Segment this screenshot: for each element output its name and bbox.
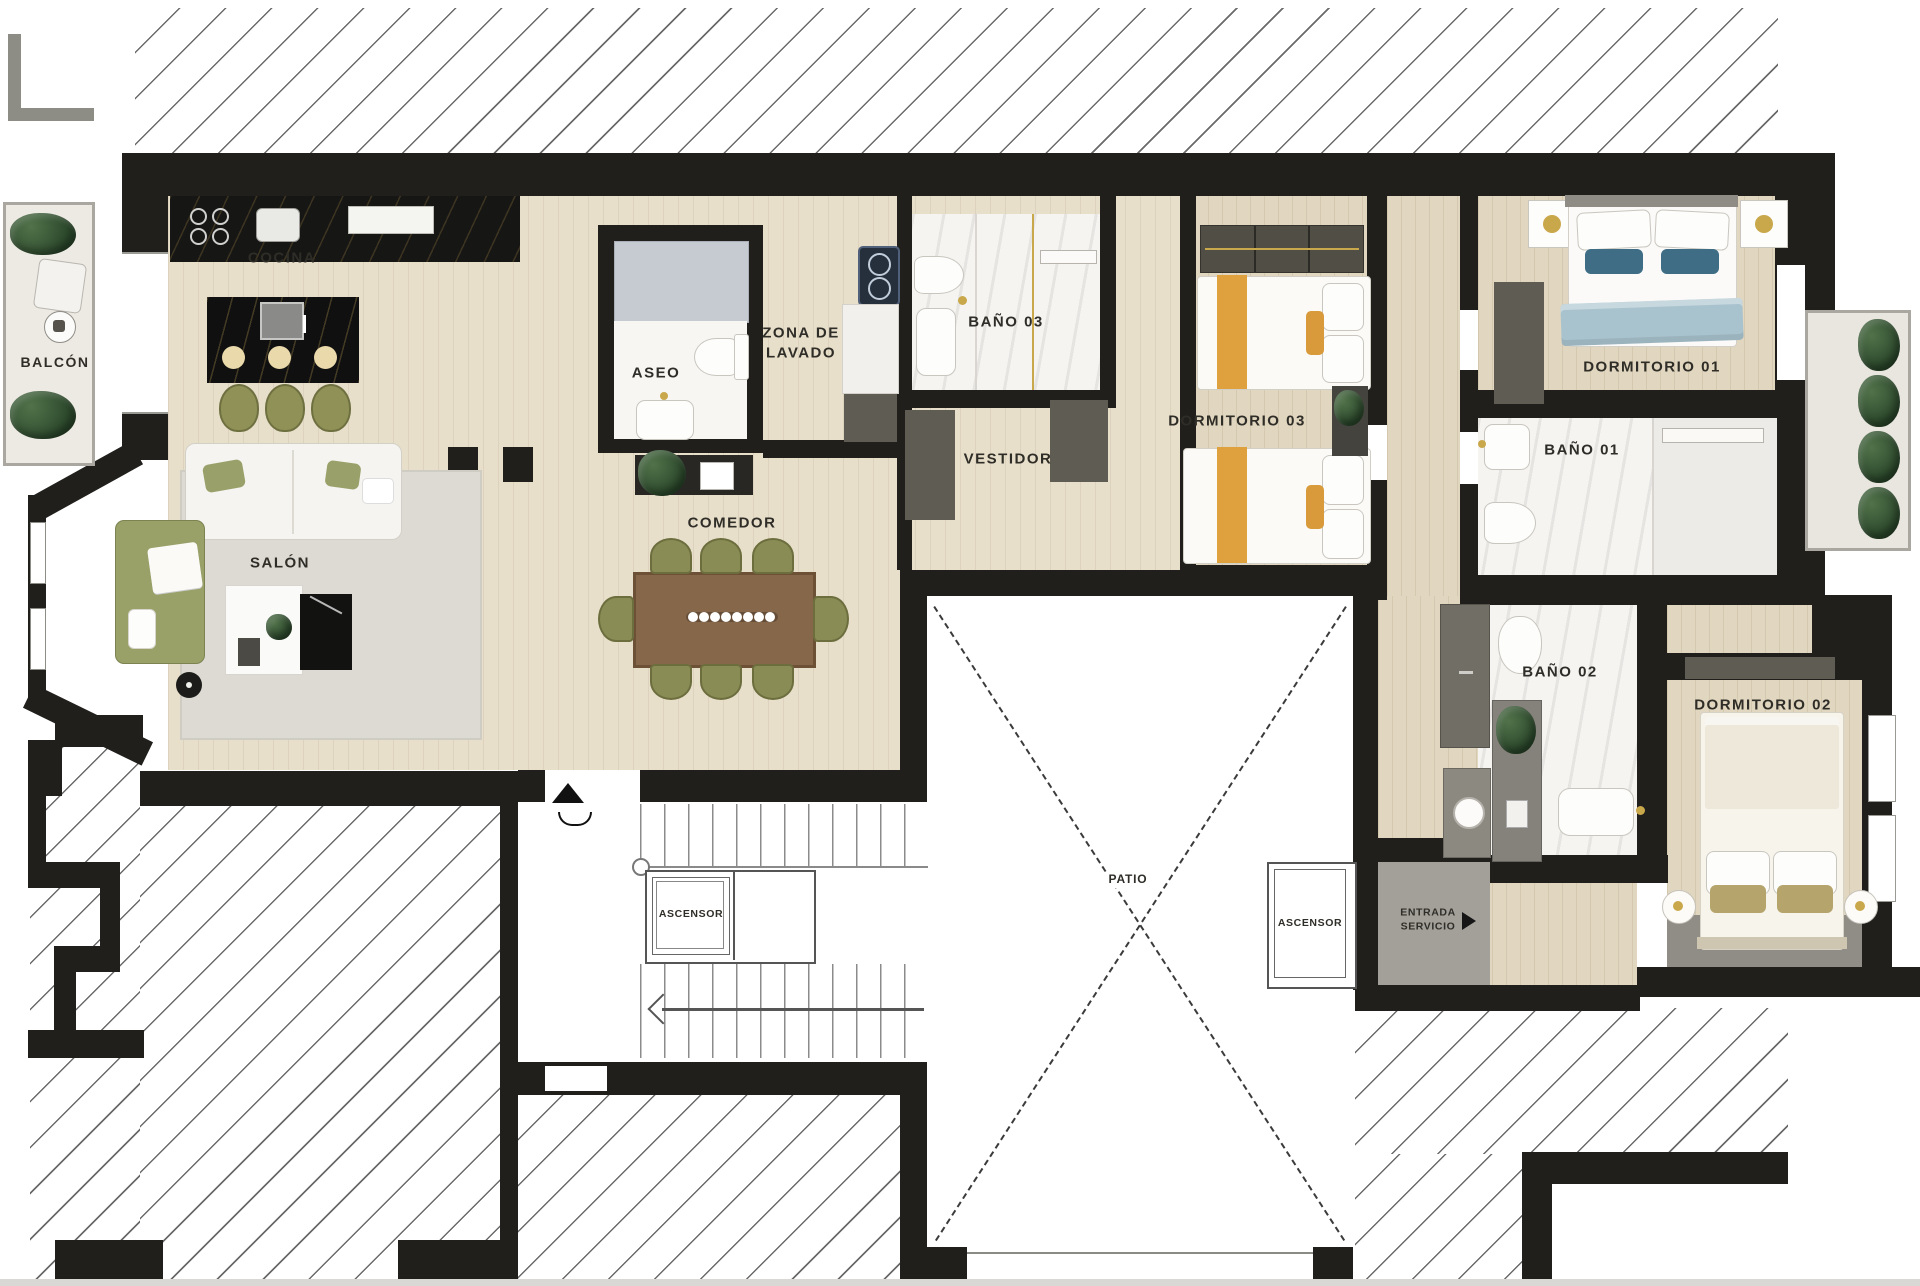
label-dormitorio03: DORMITORIO 03 <box>1168 411 1306 431</box>
hall-console-deco <box>1506 800 1528 828</box>
label-comedor: COMEDOR <box>688 513 777 533</box>
bano03-gold-seam <box>1032 214 1034 390</box>
wall-top <box>122 153 1781 196</box>
wall-dorm02-bottom <box>1637 967 1920 997</box>
island-sink <box>260 302 304 340</box>
bano02-shower-tall <box>1440 604 1490 748</box>
lamp <box>1673 901 1683 911</box>
chair <box>752 664 794 700</box>
dorm02-nightstand-right <box>1844 890 1878 924</box>
label-entrada-servicio: ENTRADA SERVICIO <box>1400 906 1456 933</box>
burner <box>212 208 229 225</box>
bano03-bench <box>1040 250 1097 264</box>
lamp <box>1543 215 1561 233</box>
bed-pillow <box>1654 209 1730 251</box>
kitchen-sink <box>256 208 300 242</box>
pillow-blue <box>1585 249 1643 274</box>
bano03-toilet <box>914 256 964 294</box>
balcony2-plant <box>1858 319 1900 371</box>
balcony-door <box>122 252 168 414</box>
bed-blanket <box>1705 717 1839 809</box>
balcony-plant-bottom <box>10 391 76 439</box>
burner <box>212 228 229 245</box>
balcony-plant-top <box>10 213 76 255</box>
exterior-hatch-bottom-right-b <box>1355 1154 1522 1286</box>
dorm01-nightstand-right <box>1740 200 1788 248</box>
dining-table <box>633 572 816 668</box>
island-faucet <box>303 315 306 333</box>
bay-window-2 <box>30 608 46 670</box>
light <box>699 612 709 622</box>
island-seat <box>222 346 245 369</box>
laundry-cabinet <box>844 394 897 442</box>
label-bano03: BAÑO 03 <box>968 312 1044 332</box>
aseo-toilet <box>694 338 738 376</box>
label-vestidor: VESTIDOR <box>964 449 1053 469</box>
dorm02-bed <box>1700 712 1844 950</box>
sofa-white <box>185 443 402 540</box>
neighbour-wall-line-v <box>8 34 21 121</box>
column-2 <box>503 447 533 482</box>
hall-console-plant <box>1496 706 1536 754</box>
dorm01-closet <box>1494 282 1544 404</box>
label-cocina: COCINA <box>248 248 316 268</box>
dorm02-closet-top <box>1685 657 1835 679</box>
entrada-line1: ENTRADA <box>1400 906 1456 918</box>
dorm01-bed <box>1568 198 1737 347</box>
pillow-khaki <box>1710 885 1766 913</box>
label-patio: PATIO <box>1105 872 1152 888</box>
pillow <box>128 609 156 649</box>
stairs-lower-flight <box>640 964 928 1058</box>
wall-salon-bottom <box>140 771 520 806</box>
wall-bano03-right <box>1100 196 1116 408</box>
dorm03-wardrobe <box>1200 225 1364 273</box>
label-dormitorio02: DORMITORIO 02 <box>1694 695 1832 715</box>
light <box>710 612 720 622</box>
label-ascensor-left: ASCENSOR <box>659 908 723 922</box>
bano02-tap <box>1636 806 1645 815</box>
exterior-hatch-bottom-mid <box>518 1095 928 1286</box>
exterior-hatch-bottom-left-b <box>30 735 140 1286</box>
bano01-bench <box>1662 428 1764 443</box>
label-bano01: BAÑO 01 <box>1544 440 1620 460</box>
aseo-toilet-tank <box>734 334 749 380</box>
wall-entrada-bottom <box>1355 985 1640 1011</box>
pillow-accent <box>1306 311 1324 355</box>
balcony-right <box>1805 310 1911 551</box>
light <box>743 612 753 622</box>
exterior-hatch-bottom-right-a <box>1355 1008 1788 1154</box>
washer-door <box>868 253 891 276</box>
dot <box>186 682 192 688</box>
aseo-shower <box>614 241 749 323</box>
bano02-sink <box>1558 788 1634 836</box>
balcony2-plant <box>1858 375 1900 427</box>
coffee-table-black <box>300 594 352 670</box>
light <box>732 612 742 622</box>
pillow-accent <box>1306 485 1324 529</box>
dorm01-window <box>1777 265 1805 380</box>
label-bano02: BAÑO 02 <box>1522 662 1598 682</box>
exterior-hatch-top <box>135 8 1778 153</box>
sofa-pillow-white <box>362 478 394 504</box>
balcony-table <box>44 311 76 343</box>
stairs-landing-line <box>640 866 928 868</box>
burner <box>190 228 207 245</box>
dorm03-bed-1 <box>1197 276 1371 390</box>
bed-throw-blue <box>1560 298 1743 346</box>
zona-line1: ZONA DE <box>762 325 839 342</box>
light <box>754 612 764 622</box>
zona-line2: LAVADO <box>766 344 836 361</box>
stairs-direction-line <box>662 1008 924 1011</box>
island-seat <box>314 346 337 369</box>
dorm02-window-2 <box>1868 815 1896 902</box>
wall-dorm03-bottom <box>1180 565 1387 600</box>
deco-book <box>238 638 260 666</box>
marble-streak <box>310 596 343 615</box>
stool <box>265 384 305 432</box>
bano01-door <box>1460 432 1478 484</box>
dorm03-bed-2 <box>1183 448 1371 564</box>
bano03-seam <box>975 214 977 390</box>
dryer-door <box>868 277 891 300</box>
sofa-green <box>115 520 205 664</box>
dorm03-desk-plant <box>1334 390 1364 426</box>
bed-runner-orange <box>1217 275 1247 389</box>
balcony-left <box>3 202 95 466</box>
side-table-black <box>176 672 202 698</box>
bano03-tap <box>958 296 967 305</box>
wall-zona-bottom <box>763 440 912 458</box>
blanket <box>147 542 203 595</box>
lamp <box>1755 215 1773 233</box>
bed-pillow <box>1322 335 1364 383</box>
dorm02-nightstand-left <box>1662 890 1696 924</box>
table-deco <box>53 320 65 332</box>
island-seat <box>268 346 291 369</box>
kitchen-hood <box>348 206 434 234</box>
chair <box>650 664 692 700</box>
light <box>765 612 775 622</box>
stool <box>219 384 259 432</box>
bano03-sink <box>916 308 956 376</box>
stairs-upper-flight <box>640 804 928 866</box>
aseo-tap <box>660 392 668 400</box>
pillow-khaki <box>1777 885 1833 913</box>
burner <box>190 208 207 225</box>
table-plant <box>266 614 292 640</box>
chair <box>650 538 692 574</box>
washer-dryer <box>858 246 900 306</box>
bed-pillow <box>1322 283 1364 331</box>
bed-pillow <box>1322 455 1364 505</box>
stove-icon <box>188 206 234 246</box>
elevator-divider <box>733 870 735 960</box>
balcony-chair <box>33 258 87 314</box>
chair-end <box>813 596 849 642</box>
dorm01-door <box>1460 310 1478 370</box>
entry-arrow-up-icon <box>552 783 584 803</box>
headboard <box>1697 937 1847 949</box>
balcony2-plant <box>1858 487 1900 539</box>
entrada-line2: SERVICIO <box>1401 920 1456 932</box>
label-ascensor-right: ASCENSOR <box>1278 917 1342 931</box>
sofa-divider <box>292 450 294 534</box>
laundry-counter <box>842 304 899 394</box>
hall-shelf-panel <box>700 462 734 490</box>
sofa-pillow-green <box>202 459 246 494</box>
headboard <box>1565 195 1738 207</box>
vanity-sink-round <box>1453 797 1485 829</box>
patio-bottom-line <box>967 1252 1313 1254</box>
bano01-toilet <box>1484 502 1536 544</box>
bed-pillow <box>1576 209 1652 251</box>
hall-shelf-plant <box>638 450 686 496</box>
chair <box>752 538 794 574</box>
page-edge <box>0 1279 1920 1286</box>
zigzag-1 <box>55 715 143 747</box>
chair <box>700 664 742 700</box>
label-aseo: ASEO <box>632 363 681 383</box>
stool <box>311 384 351 432</box>
wall-right-jog-b <box>1812 595 1892 653</box>
zigzag-8 <box>28 1030 144 1058</box>
bed-runner-orange <box>1217 447 1247 563</box>
bano02-vanity-gray <box>1443 768 1491 858</box>
bano01-sink <box>1484 424 1530 470</box>
label-zona-lavado: ZONA DE LAVADO <box>762 324 839 363</box>
vestidor-closet-right <box>1050 400 1108 482</box>
dorm02-window-1 <box>1868 715 1896 802</box>
kitchen-counter <box>170 196 520 262</box>
pillow-blue <box>1661 249 1719 274</box>
coffee-table-white <box>225 585 303 675</box>
exterior-hatch-bottom-left-a <box>140 806 520 1286</box>
bano01-tap <box>1478 440 1486 448</box>
wardrobe-rail <box>1205 248 1359 250</box>
wall-bano01-bottom <box>1460 575 1805 605</box>
wall-bano02-right <box>1637 605 1667 855</box>
wall-stair-left <box>500 800 518 1286</box>
chair <box>700 538 742 574</box>
label-balcon: BALCÓN <box>21 353 90 371</box>
bed-pillow <box>1322 509 1364 559</box>
wall-br-step-h <box>1522 1152 1788 1184</box>
label-dormitorio01: DORMITORIO 01 <box>1583 357 1721 377</box>
label-salon: SALÓN <box>250 553 310 573</box>
light <box>688 612 698 622</box>
chair-end <box>598 596 634 642</box>
vestidor-closet-left <box>905 410 955 520</box>
wall-br-step-v <box>1522 1152 1552 1286</box>
sofa-pillow-green2 <box>324 460 361 490</box>
shower-handle <box>1459 671 1473 674</box>
lamp <box>1855 901 1865 911</box>
zigzag-2 <box>28 740 62 796</box>
balcony2-plant <box>1858 431 1900 483</box>
light <box>721 612 731 622</box>
kitchen-island <box>207 297 359 383</box>
aseo-sink <box>636 400 694 440</box>
service-entrance-arrow-icon <box>1462 912 1476 930</box>
stair-bottom-door <box>545 1066 607 1091</box>
bay-window-1 <box>30 522 46 584</box>
floor-plan: BALCÓN COCINA <box>0 0 1920 1286</box>
